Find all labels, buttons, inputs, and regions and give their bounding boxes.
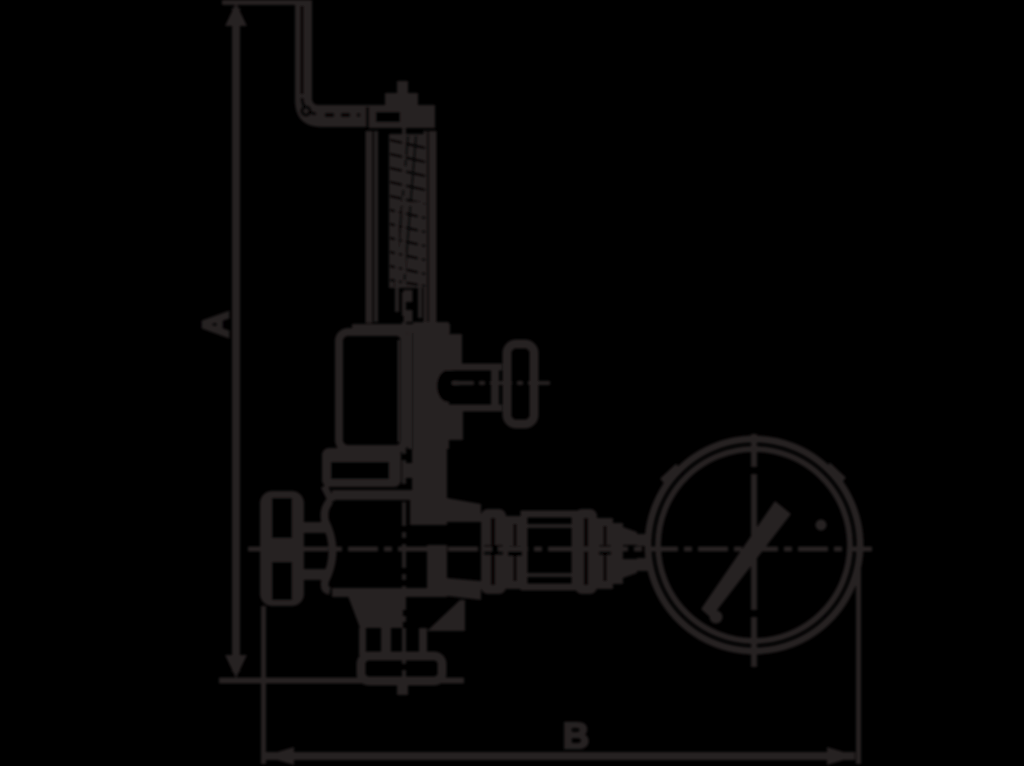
svg-text:A: A	[195, 312, 236, 338]
svg-text:B: B	[563, 715, 589, 756]
